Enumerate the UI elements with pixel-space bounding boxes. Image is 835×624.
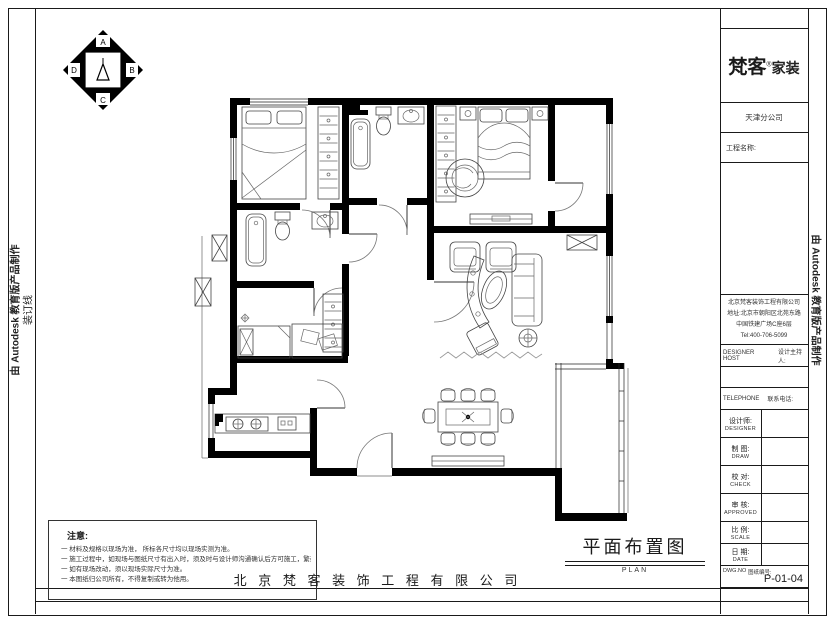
project-label: 工程名称: bbox=[726, 143, 756, 153]
branch-label: 天津分公司 bbox=[745, 112, 783, 123]
autodesk-credit-right: 由 Autodesk 教育版产品制作 bbox=[810, 234, 825, 365]
sink-icon bbox=[398, 107, 424, 124]
bathroom-left-fixtures bbox=[246, 212, 338, 266]
windows bbox=[202, 97, 628, 513]
drawing-title: 平面布置图 bbox=[565, 533, 705, 559]
binding-separator-line bbox=[35, 8, 36, 614]
telephone-cn: 联系电话: bbox=[767, 394, 793, 403]
armchair-2 bbox=[486, 242, 516, 272]
titleblock-host-value bbox=[720, 367, 808, 388]
kitchen-fixtures bbox=[215, 414, 310, 433]
row-designer: 设计师:DESIGNER bbox=[720, 410, 808, 438]
row-approved: 审 核:APPROVED bbox=[720, 494, 808, 522]
sofa-three-seat bbox=[512, 254, 542, 326]
company-line: 中国铁建广场C座6层 bbox=[720, 320, 808, 331]
notes-title: 注意: bbox=[67, 529, 88, 542]
footer-line-bottom bbox=[35, 601, 808, 602]
sideboard bbox=[432, 456, 504, 466]
side-table-round bbox=[519, 329, 537, 347]
titleblock-empty-cell bbox=[720, 163, 808, 295]
dwg-no-cell: DWG.NO 图纸编号: P-01-04 bbox=[720, 566, 808, 588]
toilet-icon bbox=[376, 107, 391, 135]
closet-bedroom2 bbox=[323, 294, 343, 352]
footer-company-name: 北 京 梵 客 装 饰 工 程 有 限 公 司 bbox=[35, 570, 720, 589]
compass-letter-b: B bbox=[129, 66, 134, 75]
dwg-value: P-01-04 bbox=[764, 573, 803, 585]
closet-bedroom1 bbox=[318, 107, 339, 199]
drawing-sheet: 由 Autodesk 教育版产品制作 装订线 由 Autodesk 教育版产品制… bbox=[0, 0, 835, 624]
compass-letter-a: A bbox=[100, 38, 106, 47]
compass-letter-c: C bbox=[100, 96, 106, 105]
company-line: 地址:北京市朝阳区北苑东路 bbox=[720, 309, 808, 320]
note-item: 一 材料及规格以现场为准， 所标各尺寸均以现场实测为准。 bbox=[61, 545, 311, 555]
telephone-en: TELEPHONE bbox=[723, 396, 759, 402]
bathtub-icon bbox=[351, 119, 370, 169]
stove-icon bbox=[226, 417, 268, 431]
dwg-en: DWG.NO bbox=[723, 568, 746, 574]
round-chair bbox=[446, 159, 484, 197]
row-date: 日 期:DATE bbox=[720, 544, 808, 566]
floor-plan bbox=[182, 86, 672, 534]
brand-logo: 梵客®家装 bbox=[728, 52, 799, 79]
coffee-table bbox=[476, 267, 511, 312]
drawing-title-block: 平面布置图 PLAN bbox=[565, 533, 705, 574]
bedroom2-furniture bbox=[238, 314, 342, 358]
titleblock-branch-cell: 天津分公司 bbox=[720, 103, 808, 133]
shafts bbox=[195, 235, 597, 306]
company-line: 北京梵客装饰工程有限公司 bbox=[720, 298, 808, 309]
sink-icon-2 bbox=[312, 212, 338, 229]
binding-line-label: 装订线 bbox=[20, 295, 35, 325]
bathtub-icon-2 bbox=[246, 214, 266, 266]
bathroom-top-fixtures bbox=[349, 105, 424, 169]
compass-letter-d: D bbox=[71, 66, 77, 75]
north-compass-logo: A B C D bbox=[58, 25, 148, 120]
bed-double-nw bbox=[242, 107, 306, 199]
titleblock-logo-cell: 梵客®家装 bbox=[720, 28, 808, 103]
row-scale: 比 例:SCALE bbox=[720, 522, 808, 544]
row-draw: 制 图:DRAW bbox=[720, 438, 808, 466]
company-line: Tel:400-706-5099 bbox=[720, 331, 808, 342]
closet-master bbox=[436, 106, 456, 202]
living-room-furniture bbox=[440, 242, 542, 358]
dresser-master bbox=[470, 214, 532, 224]
designer-host-cn: 设计主持人: bbox=[778, 347, 808, 365]
designer-host-en: DESIGNER HOST bbox=[723, 350, 770, 362]
titleblock-host-cell: DESIGNER HOST 设计主持人: bbox=[720, 345, 808, 367]
note-item: 一 施工过程中，如现场与图纸尺寸有出入时，须及时与设计师沟通确认后方可施工，繁杂… bbox=[61, 555, 311, 565]
titleblock-telephone-cell: TELEPHONE 联系电话: bbox=[720, 388, 808, 410]
row-check: 校 对:CHECK bbox=[720, 466, 808, 494]
bed-single bbox=[238, 326, 290, 358]
dining-set bbox=[423, 389, 514, 467]
lounge-chair bbox=[466, 322, 499, 356]
titleblock-project-cell: 工程名称: bbox=[720, 133, 808, 163]
walls bbox=[208, 98, 627, 521]
toilet-icon-2 bbox=[275, 212, 290, 240]
titleblock-company-cell: 北京梵客装饰工程有限公司 地址:北京市朝阳区北苑东路 中国铁建广场C座6层 Te… bbox=[720, 295, 808, 345]
